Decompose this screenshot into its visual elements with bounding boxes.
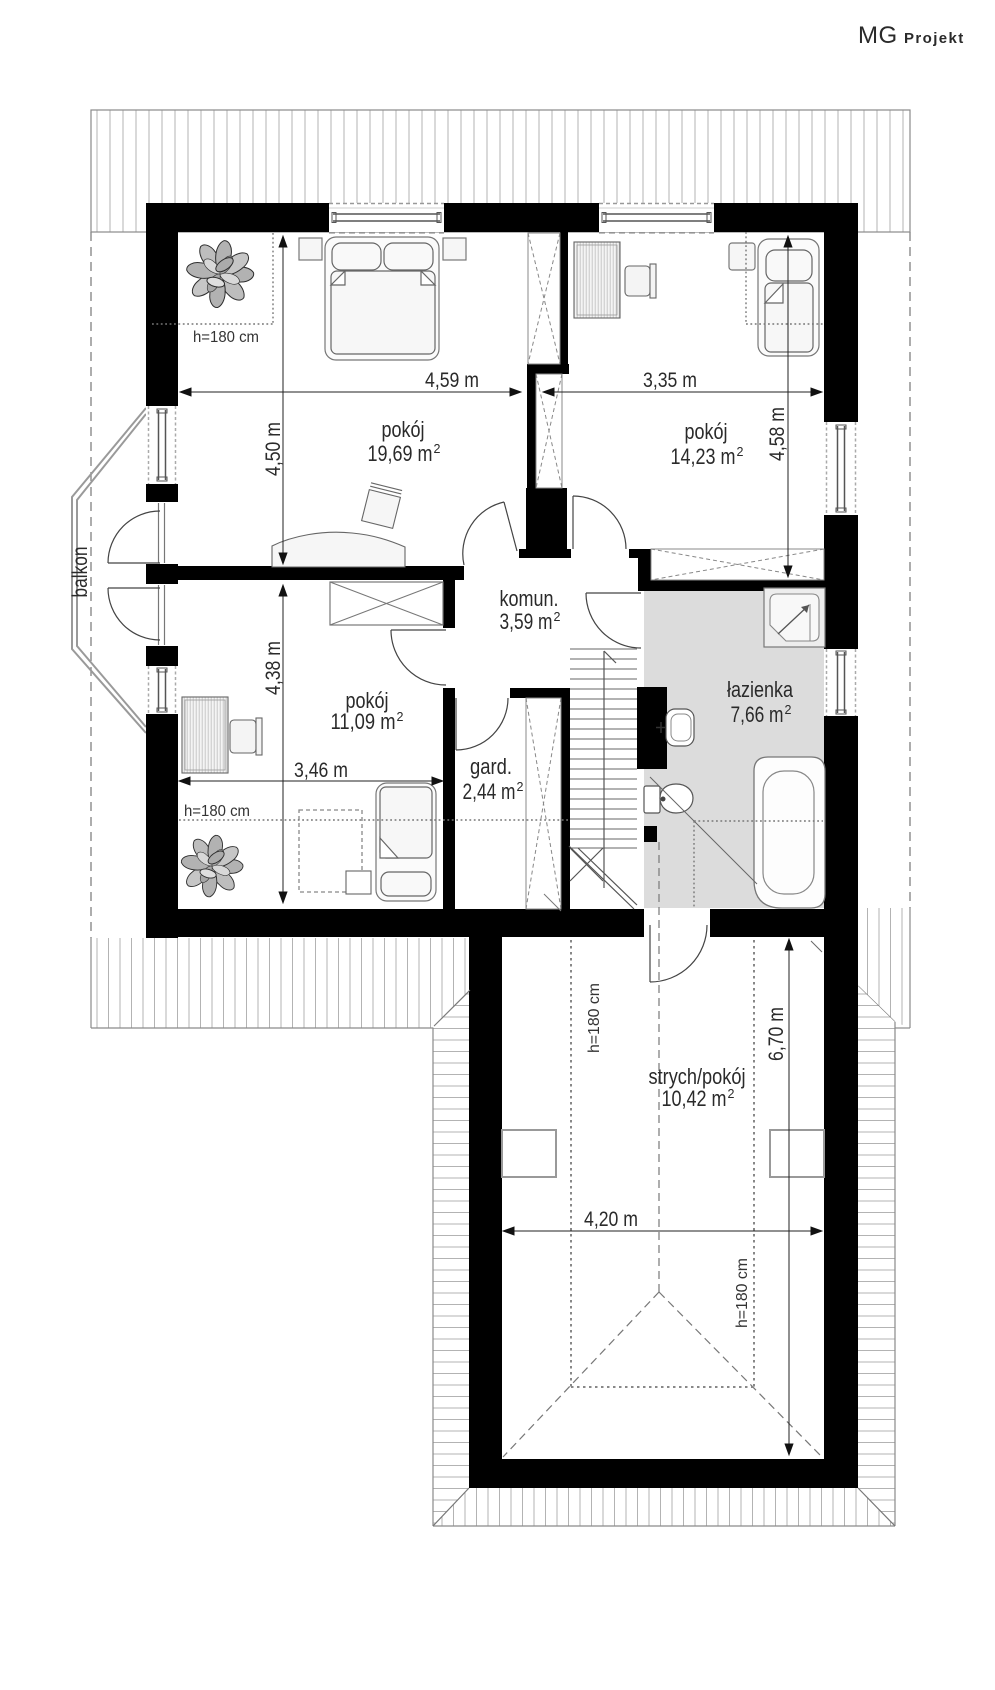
svg-text:3,35 m: 3,35 m (643, 369, 697, 392)
svg-text:6,70 m: 6,70 m (765, 1007, 788, 1061)
svg-text:11,09 m: 11,09 m (331, 709, 396, 734)
svg-text:3,59 m: 3,59 m (500, 609, 553, 634)
svg-text:2: 2 (517, 780, 524, 794)
svg-text:2: 2 (554, 610, 561, 624)
svg-text:2: 2 (434, 442, 441, 456)
svg-text:h=180 cm: h=180 cm (734, 1258, 751, 1328)
svg-text:10,42 m: 10,42 m (662, 1086, 727, 1111)
svg-text:4,20 m: 4,20 m (584, 1208, 638, 1231)
svg-text:2,44 m: 2,44 m (463, 779, 516, 804)
svg-text:gard.: gard. (470, 754, 512, 779)
svg-text:Projekt: Projekt (904, 30, 965, 47)
svg-text:łazienka: łazienka (727, 677, 794, 702)
svg-text:4,50 m: 4,50 m (262, 422, 285, 476)
svg-text:balkon: balkon (69, 547, 92, 598)
svg-text:2: 2 (785, 703, 792, 717)
svg-text:h=180 cm: h=180 cm (586, 983, 603, 1053)
svg-text:2: 2 (737, 445, 744, 459)
svg-text:2: 2 (397, 710, 404, 724)
svg-text:4,59 m: 4,59 m (425, 369, 479, 392)
svg-text:3,46 m: 3,46 m (294, 759, 348, 782)
svg-text:14,23 m: 14,23 m (671, 444, 736, 469)
svg-text:7,66 m: 7,66 m (731, 702, 784, 727)
svg-text:pokój: pokój (685, 419, 728, 444)
svg-text:MG: MG (858, 22, 898, 49)
svg-text:h=180 cm: h=180 cm (184, 803, 250, 820)
svg-text:2: 2 (728, 1087, 735, 1101)
svg-text:4,58 m: 4,58 m (766, 407, 789, 461)
svg-text:pokój: pokój (382, 417, 425, 442)
svg-text:h=180 cm: h=180 cm (193, 329, 259, 346)
svg-text:komun.: komun. (500, 586, 559, 611)
svg-text:4,38 m: 4,38 m (262, 641, 285, 695)
svg-text:19,69 m: 19,69 m (368, 441, 433, 466)
